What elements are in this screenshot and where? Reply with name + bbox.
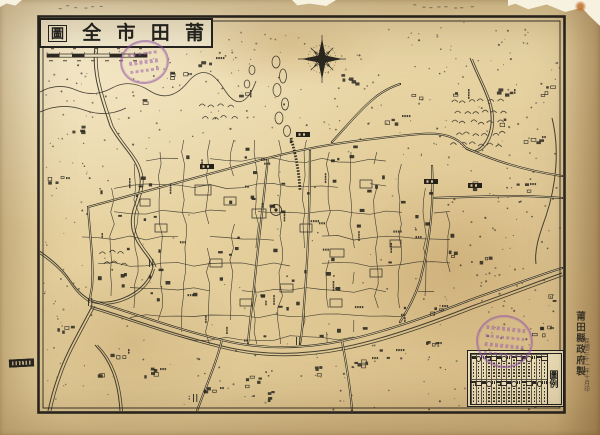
scanned-map-sheet: 圖 全 市 田 莆 圖例 莆田縣政府製 民國三十一年十月印 <box>0 0 600 435</box>
rust-spot <box>574 1 587 12</box>
compass-rose-icon <box>298 35 346 83</box>
title-char: 莆 <box>185 24 204 43</box>
title-char: 圖 <box>48 25 67 42</box>
colophon-date: 民國三十一年十月印 <box>582 338 590 392</box>
map-title-cartouche: 圖 全 市 田 莆 <box>39 18 213 48</box>
title-char: 田 <box>151 24 170 43</box>
coast-and-hills <box>40 56 507 265</box>
title-char: 市 <box>116 24 135 43</box>
title-char: 全 <box>82 24 101 43</box>
legend-title: 圖例 <box>547 354 561 404</box>
margin-label <box>9 358 34 367</box>
